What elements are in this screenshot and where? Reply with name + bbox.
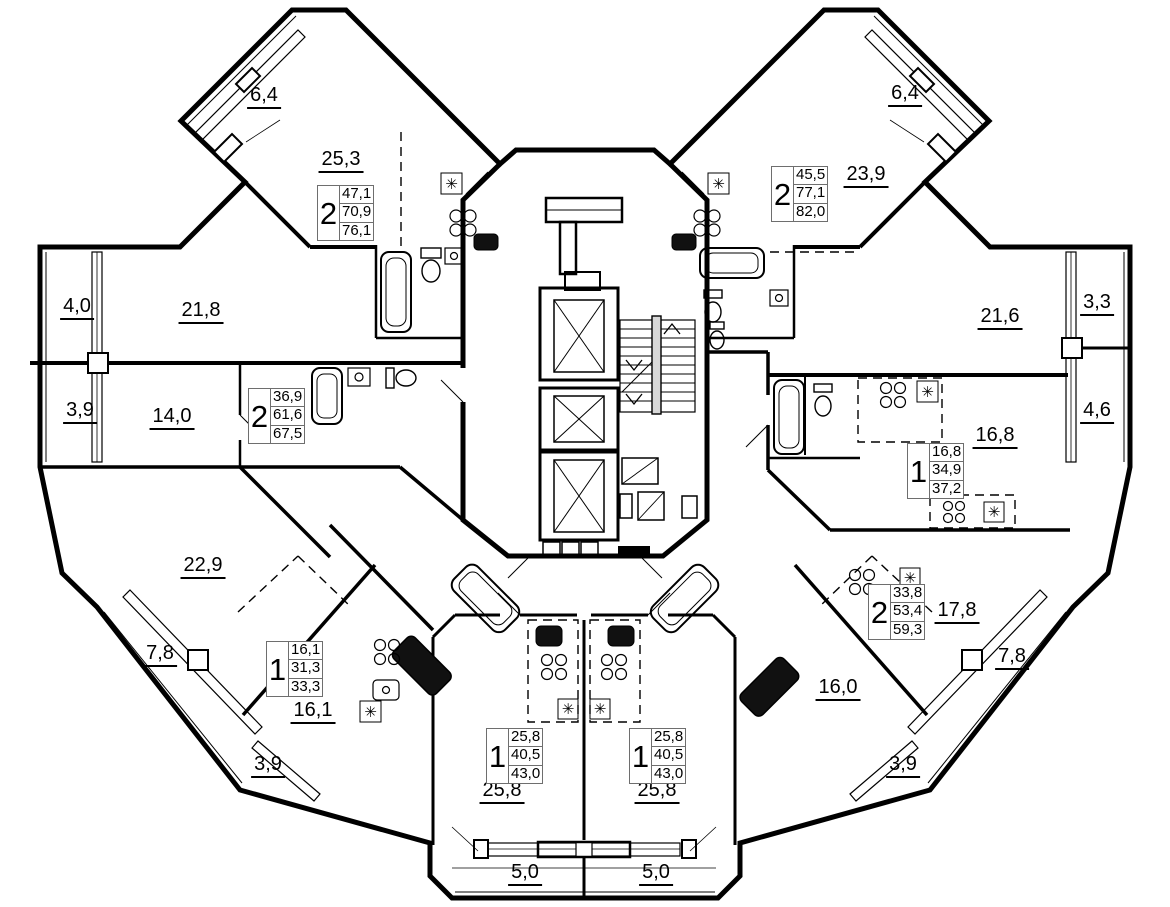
stamp-rooms-count: 1 (487, 729, 508, 783)
stamp-living-area: 16,8 (930, 444, 963, 462)
room-area-label-room-lower-right-2: 16,0 (816, 677, 861, 701)
apartment-stamp-left: 2 36,9 61,6 67,5 (248, 388, 305, 444)
apartment-stamp-top-right: 2 45,5 77,1 82,0 (771, 166, 828, 222)
stamp-areas: 33,8 53,4 59,3 (890, 585, 924, 639)
sink-icon (348, 248, 788, 700)
svg-text:✳: ✳ (594, 700, 607, 718)
stamp-total-area: 37,2 (930, 481, 963, 498)
stamp-living-area: 47,1 (340, 186, 373, 204)
stamp-areas: 36,9 61,6 67,5 (270, 389, 304, 443)
room-area-label-balcony-lower-left-2: 3,9 (251, 754, 285, 778)
stamp-rooms-count: 1 (908, 444, 929, 498)
room-area-label-balcony-left-upper: 4,0 (60, 296, 94, 320)
stamp-floor-area: 77,1 (794, 185, 827, 203)
stamp-floor-area: 53,4 (891, 603, 924, 621)
stamp-total-area: 59,3 (891, 622, 924, 639)
stamp-areas: 16,8 34,9 37,2 (929, 444, 963, 498)
stamp-areas: 45,5 77,1 82,0 (793, 167, 827, 221)
stamp-rooms-count: 1 (267, 642, 288, 696)
elevator-shaft-icon (540, 388, 618, 450)
apartment-stamp-bottom-left: 1 25,8 40,5 43,0 (486, 728, 543, 784)
stamp-total-area: 82,0 (794, 204, 827, 221)
stamp-living-area: 45,5 (794, 167, 827, 185)
stamp-total-area: 33,3 (289, 679, 322, 696)
room-area-label-room-left-lower: 14,0 (150, 406, 195, 430)
elevator-shaft-icon (540, 452, 618, 540)
room-area-label-room-top-left: 25,3 (319, 149, 364, 173)
stamp-areas: 16,1 31,3 33,3 (288, 642, 322, 696)
room-area-label-room-top-right: 23,9 (844, 164, 889, 188)
svg-text:✳: ✳ (988, 503, 1001, 521)
room-area-label-balcony-left-lower: 3,9 (63, 400, 97, 424)
stamp-total-area: 67,5 (271, 426, 304, 443)
stamp-rooms-count: 2 (249, 389, 270, 443)
stamp-living-area: 33,8 (891, 585, 924, 603)
apartment-stamp-right: 1 16,8 34,9 37,2 (907, 443, 964, 499)
svg-text:✳: ✳ (921, 383, 934, 401)
stamp-floor-area: 40,5 (509, 747, 542, 765)
apartment-stam-lower-right: 2 33,8 53,4 59,3 (868, 584, 925, 640)
svg-text:✳: ✳ (712, 175, 725, 193)
room-area-label-balcony-lower-right-2: 3,9 (886, 754, 920, 778)
stamp-living-area: 36,9 (271, 389, 304, 407)
stamp-rooms-count: 2 (318, 186, 339, 240)
stamp-areas: 25,8 40,5 43,0 (508, 729, 542, 783)
stamp-rooms-count: 2 (869, 585, 890, 639)
stamp-floor-area: 40,5 (652, 747, 685, 765)
apartment-stamp-lower-left: 1 16,1 31,3 33,3 (266, 641, 323, 697)
stamp-floor-area: 61,6 (271, 407, 304, 425)
room-area-label-balcony-right-upper: 3,3 (1080, 292, 1114, 316)
apartment-stamp-top-left: 2 47,1 70,9 76,1 (317, 185, 374, 241)
stamp-floor-area: 70,9 (340, 204, 373, 222)
room-area-label-room-lower-right: 17,8 (935, 600, 980, 624)
vent-shafts (620, 458, 697, 520)
bathtub-icon (312, 248, 804, 719)
room-area-label-balcony-bottom-left: 5,0 (508, 862, 542, 886)
stamp-living-area: 25,8 (509, 729, 542, 747)
staircase-icon (620, 316, 695, 414)
stamp-floor-area: 31,3 (289, 660, 322, 678)
kitchen-sink-icon (474, 234, 696, 646)
stamp-total-area: 43,0 (509, 766, 542, 783)
stamp-floor-area: 34,9 (930, 462, 963, 480)
trash-chute (546, 198, 622, 290)
room-area-label-room-lower-left: 22,9 (181, 555, 226, 579)
room-area-label-balcony-right-lower: 4,6 (1080, 400, 1114, 424)
room-area-label-balcony-lower-right: 7,8 (995, 646, 1029, 670)
floor-plan-drawing: ✳ ✳ ✳ ✳ ✳ ✳ ✳ ✳ (0, 0, 1170, 907)
stamp-areas: 47,1 70,9 76,1 (339, 186, 373, 240)
room-area-label-balcony-bottom-right: 5,0 (639, 862, 673, 886)
toilet-icon (386, 248, 832, 416)
elevator-shaft-icon (540, 288, 618, 380)
floor-plan: ✳ ✳ ✳ ✳ ✳ ✳ ✳ ✳ 6,4 25,3 6,4 23,9 4,0 21… (0, 0, 1170, 907)
stamp-living-area: 25,8 (652, 729, 685, 747)
room-area-label-balcony-top-left: 6,4 (247, 85, 281, 109)
svg-text:✳: ✳ (562, 700, 575, 718)
room-area-label-room-right-lower: 16,8 (973, 425, 1018, 449)
room-area-label-room-lower-left-2: 16,1 (291, 700, 336, 724)
stamp-rooms-count: 1 (630, 729, 651, 783)
room-area-label-balcony-top-right: 6,4 (888, 83, 922, 107)
room-area-label-balcony-lower-left: 7,8 (143, 643, 177, 667)
apartment-stamp-bottom-right: 1 25,8 40,5 43,0 (629, 728, 686, 784)
stamp-total-area: 43,0 (652, 766, 685, 783)
stamp-areas: 25,8 40,5 43,0 (651, 729, 685, 783)
svg-text:✳: ✳ (445, 175, 458, 193)
stamp-total-area: 76,1 (340, 223, 373, 240)
room-area-label-room-right-upper: 21,6 (978, 306, 1023, 330)
stamp-living-area: 16,1 (289, 642, 322, 660)
svg-text:✳: ✳ (364, 703, 377, 721)
room-area-label-room-left-upper: 21,8 (179, 300, 224, 324)
stamp-rooms-count: 2 (772, 167, 793, 221)
entrance-door (508, 542, 662, 578)
